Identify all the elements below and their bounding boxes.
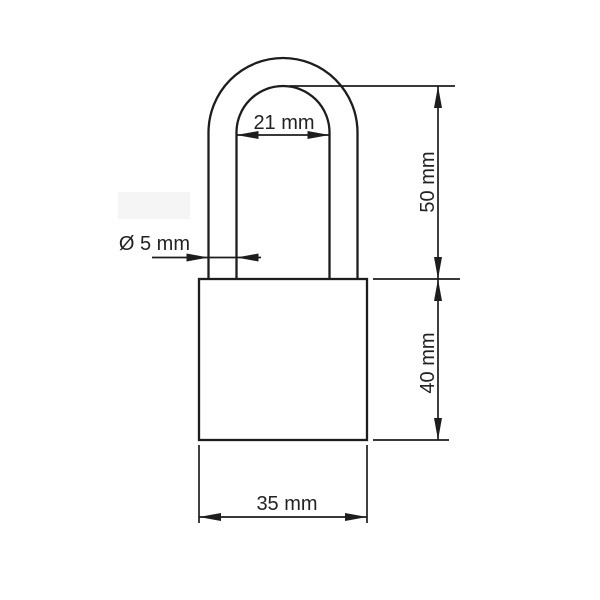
dim-label-shackle-wire-diameter: Ø 5 mm <box>119 233 190 255</box>
dim-label-body-width: 35 mm <box>256 493 317 515</box>
arrowhead-up-icon <box>434 86 442 108</box>
arrowhead-right-icon <box>345 513 367 521</box>
dim-body-width: 35 mm <box>199 445 367 523</box>
dim-label-body-height: 40 mm <box>417 332 439 393</box>
arrowhead-left-icon <box>237 254 259 262</box>
dim-shackle-inner-width: 21 mm <box>237 112 330 139</box>
dim-label-shackle-inner-width: 21 mm <box>253 112 314 134</box>
arrowhead-up-icon <box>434 279 442 301</box>
arrowhead-down-icon <box>434 257 442 279</box>
dim-body-height: 40 mm <box>373 279 460 440</box>
arrowhead-down-icon <box>434 418 442 440</box>
padlock-technical-drawing: 21 mm Ø 5 mm 50 mm 40 mm <box>0 0 600 600</box>
padlock-body <box>199 279 367 440</box>
faint-highlight-artifact <box>118 192 190 219</box>
drawing-canvas: 21 mm Ø 5 mm 50 mm 40 mm <box>0 0 600 600</box>
shackle-outer-contour <box>209 58 358 279</box>
arrowhead-left-icon <box>199 513 221 521</box>
dim-shackle-wire-diameter: Ø 5 mm <box>119 233 261 262</box>
dim-label-shackle-height: 50 mm <box>417 151 439 212</box>
